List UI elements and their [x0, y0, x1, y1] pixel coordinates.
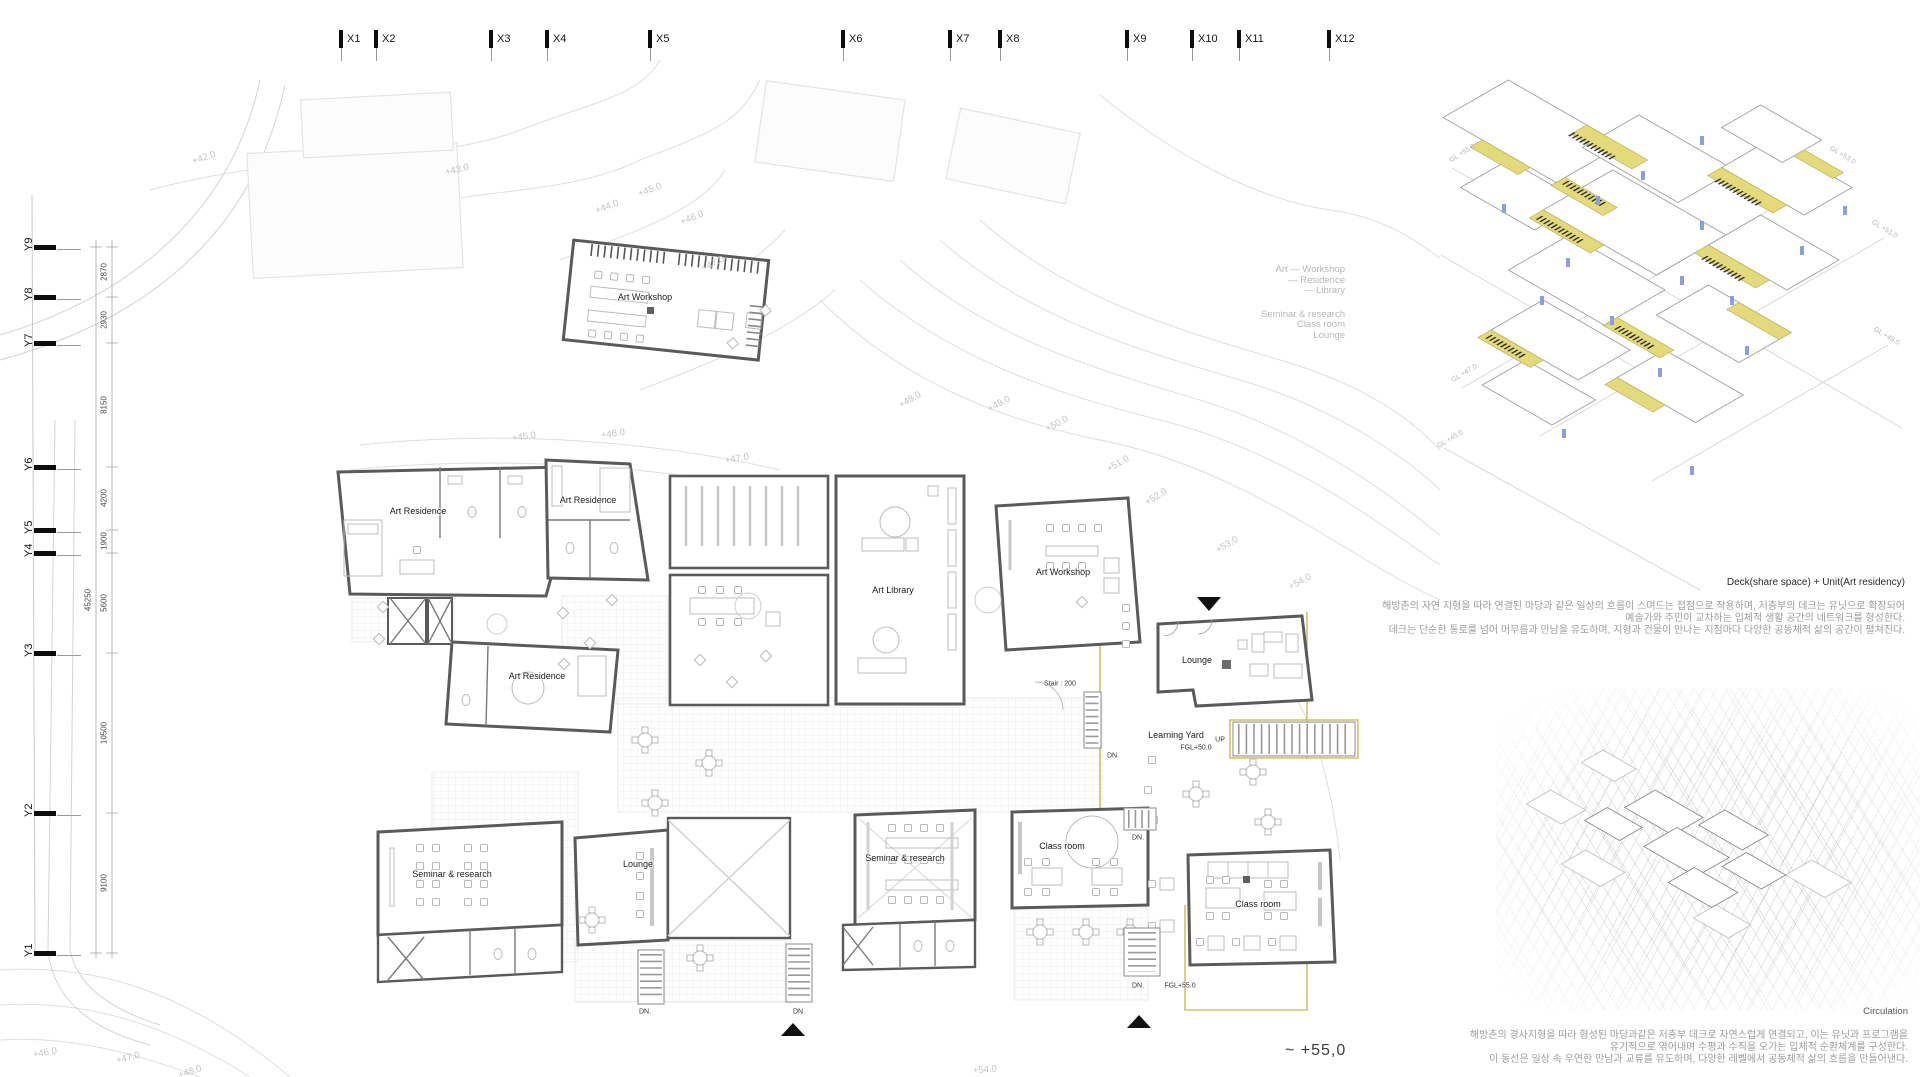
contour-lines — [0, 60, 1440, 1077]
legend-line: Lounge — [1160, 331, 1345, 342]
room-label: Class room — [1235, 899, 1281, 909]
x-tick-bar — [374, 30, 378, 48]
architectural-sheet: X1X2X3X4X5X6X7X8X9X10X11X12 Y9Y8Y7Y6Y5Y4… — [0, 0, 1920, 1077]
room-label: Lounge — [623, 859, 653, 869]
building-lounge-bottom — [575, 830, 668, 945]
y-tick-label: Y6 — [23, 458, 35, 471]
x-tick-line — [1239, 48, 1240, 61]
contour-elevation: +43.0 — [444, 162, 470, 178]
contour-elevation: +47.0 — [724, 451, 750, 466]
annotation-label: FGL+55.0 — [1164, 983, 1195, 990]
contour-elevation: +53.0 — [1214, 534, 1240, 556]
contour-elevation: +54.0 — [1287, 571, 1313, 592]
y-tick-line — [57, 532, 81, 533]
room-label: Seminar & research — [865, 853, 945, 863]
room-label: Art Workshop — [1036, 567, 1090, 577]
description-line: 해방촌의 자연 지형을 따라 연결된 마당과 같은 일상의 흐름이 스며드는 접… — [1382, 601, 1905, 613]
y-tick-label: Y5 — [23, 521, 35, 534]
dimension-value: 2930 — [100, 311, 109, 329]
room-label: Art Residence — [390, 506, 447, 516]
y-tick-label: Y4 — [23, 544, 35, 557]
y-tick-label: Y3 — [23, 644, 35, 657]
y-tick-line — [57, 555, 81, 556]
furniture — [344, 250, 1320, 971]
legend-line: Art — Workshop — [1160, 265, 1345, 276]
building-art-residence-1 — [338, 467, 562, 596]
y-tick-bar — [34, 341, 56, 346]
interior-walls — [388, 467, 972, 980]
legend-line: — Library — [1160, 286, 1345, 297]
dimension-value: 2870 — [100, 263, 109, 281]
axon-gl-label: GL +49.0 — [1872, 326, 1900, 347]
annotation-label: DN. — [1132, 835, 1144, 842]
y-tick-bar — [34, 951, 56, 956]
y-tick-line — [57, 299, 81, 300]
y-tick-label: Y8 — [23, 288, 35, 301]
contour-elevation: +45.0 — [511, 430, 536, 444]
y-tick-line — [57, 345, 81, 346]
x-tick-bar — [1125, 30, 1129, 48]
building-workroom — [670, 476, 828, 568]
contour-elevation: +47.0 — [115, 1050, 141, 1066]
x-tick-label: X6 — [849, 33, 862, 45]
description-line: 유기적으로 엮어내며 수평과 수직을 오가는 입체적 순환체계를 구성한다. — [1470, 1042, 1908, 1054]
city-context-texture — [1496, 688, 1920, 1010]
room-label: Art Library — [872, 585, 914, 595]
axon-gl-label: GL +45.0 — [1436, 429, 1464, 450]
program-legend: Art — Workshop— Residence— LibrarySemina… — [1160, 265, 1345, 341]
x-tick-line — [950, 48, 951, 61]
figures — [1502, 136, 1847, 475]
y-tick-line — [57, 955, 81, 956]
x-tick-line — [1329, 48, 1330, 61]
x-tick-label: X1 — [347, 33, 360, 45]
circulation-caption: Circulation — [1863, 1006, 1908, 1017]
dimension-value: 1900 — [100, 532, 109, 550]
overall-dimension-value: 45250 — [84, 589, 93, 611]
y-tick-bar — [34, 295, 56, 300]
x-tick-label: X9 — [1133, 33, 1146, 45]
contour-elevation: +46.0 — [600, 427, 625, 441]
deck-axon-caption: Deck(share space) + Unit(Art residency) — [1727, 577, 1905, 588]
x-tick-line — [1192, 48, 1193, 61]
x-tick-line — [843, 48, 844, 61]
annotation-label: DN. — [1107, 753, 1119, 760]
description-line: 해방촌의 경사지형을 따라 형성된 마당과같은 저층부 데크로 자연스럽게 연결… — [1470, 1030, 1908, 1042]
y-tick-label: Y2 — [23, 804, 35, 817]
room-label: Art Workshop — [618, 292, 672, 302]
y-tick-line — [57, 655, 81, 656]
contour-elevation: +44.0 — [594, 198, 620, 217]
annotation-label: DN. — [639, 1009, 651, 1016]
x-tick-label: X4 — [553, 33, 566, 45]
shaft-2 — [428, 598, 452, 644]
x-tick-line — [547, 48, 548, 61]
contour-elevation: +46.0 — [32, 1045, 58, 1060]
x-tick-bar — [489, 30, 493, 48]
x-tick-bar — [1327, 30, 1331, 48]
building-lower-room — [670, 575, 828, 705]
x-tick-line — [376, 48, 377, 61]
dimension-value: 8150 — [100, 396, 109, 414]
contour-elevation: +54.0 — [973, 1063, 998, 1076]
x-tick-bar — [841, 30, 845, 48]
contour-elevation: +50.0 — [1044, 413, 1070, 434]
y-tick-line — [57, 815, 81, 816]
x-tick-label: X3 — [497, 33, 510, 45]
room-label: Seminar & research — [412, 869, 492, 879]
contour-elevation: +45.0 — [637, 181, 663, 200]
y-tick-label: Y1 — [23, 944, 35, 957]
room-label: Class room — [1039, 841, 1085, 851]
contour-elevation: +48.0 — [897, 389, 923, 411]
dimension-value: 5600 — [100, 594, 109, 612]
y-tick-bar — [34, 651, 56, 656]
x-tick-bar — [545, 30, 549, 48]
x-tick-bar — [998, 30, 1002, 48]
x-tick-label: X7 — [956, 33, 969, 45]
annotation-label: Stair : 200 — [1044, 681, 1076, 688]
y-tick-line — [57, 249, 81, 250]
room-label: Lounge — [1182, 655, 1212, 665]
x-tick-label: X5 — [656, 33, 669, 45]
dimension-value: 4200 — [100, 489, 109, 507]
contour-elevation: +42.0 — [191, 149, 217, 167]
dimension-value: 9100 — [100, 874, 109, 892]
y-tick-label: Y7 — [23, 334, 35, 347]
x-tick-label: X2 — [382, 33, 395, 45]
axon-gl-label: GL +53.0 — [1828, 145, 1856, 166]
annotation-label: UP — [1215, 737, 1225, 744]
x-tick-label: X11 — [1245, 33, 1264, 45]
contour-elevation: +47.0 — [700, 254, 726, 274]
building-seminar-center-service — [843, 920, 975, 970]
y-tick-label: Y9 — [23, 238, 35, 251]
y-tick-bar — [34, 465, 56, 470]
context-buildings — [247, 81, 1080, 279]
contour-elevation: +51.0 — [1105, 453, 1131, 475]
contour-elevation: +48.0 — [177, 1063, 203, 1077]
building-art-residence-3 — [446, 642, 618, 732]
building-seminar-left-service — [378, 925, 562, 982]
legend-line: Class room — [1160, 320, 1345, 331]
x-tick-label: X8 — [1006, 33, 1019, 45]
x-tick-line — [491, 48, 492, 61]
x-tick-bar — [1237, 30, 1241, 48]
y-tick-bar — [34, 811, 56, 816]
annotation-label: DN. — [1132, 983, 1144, 990]
marker-triangles — [781, 597, 1221, 1036]
x-tick-line — [650, 48, 651, 61]
description-line: 데크는 단순한 통로를 넘어 머무름과 만남을 유도하며, 지형과 건물이 만나… — [1382, 625, 1905, 637]
description-line: 예술가와 주민이 교차하는 입체적 생활 공간의 네트워크를 형성한다. — [1382, 613, 1905, 625]
x-tick-line — [341, 48, 342, 61]
x-tick-line — [1000, 48, 1001, 61]
description-line: 이 동선은 일상 속 우연한 만남과 교류를 유도하며, 다양한 레벨에서 공동… — [1470, 1054, 1908, 1066]
contour-elevation: +46.0 — [679, 208, 705, 227]
x-tick-bar — [339, 30, 343, 48]
annotation-label: DN. — [793, 1009, 805, 1016]
building-seminar-center — [855, 810, 975, 925]
x-tick-label: X10 — [1198, 33, 1218, 45]
x-tick-bar — [648, 30, 652, 48]
axon-gl-label: GL +51.0 — [1870, 219, 1898, 240]
yellow-accent-lines — [1100, 612, 1358, 1010]
room-label: Art Residence — [560, 495, 617, 505]
y-tick-bar — [34, 528, 56, 533]
contour-elevation: +52.0 — [1143, 486, 1169, 508]
room-label: Art Residence — [509, 671, 566, 681]
dimension-value: 10500 — [100, 722, 109, 744]
building-art-residence-2 — [546, 460, 648, 580]
axon-gl-label: GL +47.0 — [1450, 363, 1478, 384]
stairs — [638, 682, 1355, 1004]
room-label: Learning Yard — [1148, 730, 1204, 740]
shaft-1 — [388, 598, 426, 644]
circulation-description: 해방촌의 경사지형을 따라 형성된 마당과같은 저층부 데크로 자연스럽게 연결… — [1470, 1030, 1908, 1066]
y-tick-line — [57, 469, 81, 470]
building-x-hall — [668, 818, 790, 938]
building-classroom-center — [1012, 808, 1148, 908]
deck-axon-description: 해방촌의 자연 지형을 따라 연결된 마당과 같은 일상의 흐름이 스며드는 접… — [1382, 601, 1905, 637]
y-tick-bar — [34, 245, 56, 250]
x-tick-line — [1127, 48, 1128, 61]
x-tick-label: X12 — [1335, 33, 1355, 45]
x-tick-bar — [948, 30, 952, 48]
level-note: ~ +55,0 — [1285, 1042, 1346, 1060]
y-tick-bar — [34, 551, 56, 556]
x-tick-bar — [1190, 30, 1194, 48]
axon-gl-label: GL +55.0 — [1448, 143, 1476, 164]
annotation-label: FGL+50.0 — [1180, 745, 1211, 752]
contour-elevation: +49.0 — [986, 393, 1012, 414]
legend-line — [1160, 297, 1345, 310]
paved-areas — [352, 596, 1148, 1002]
